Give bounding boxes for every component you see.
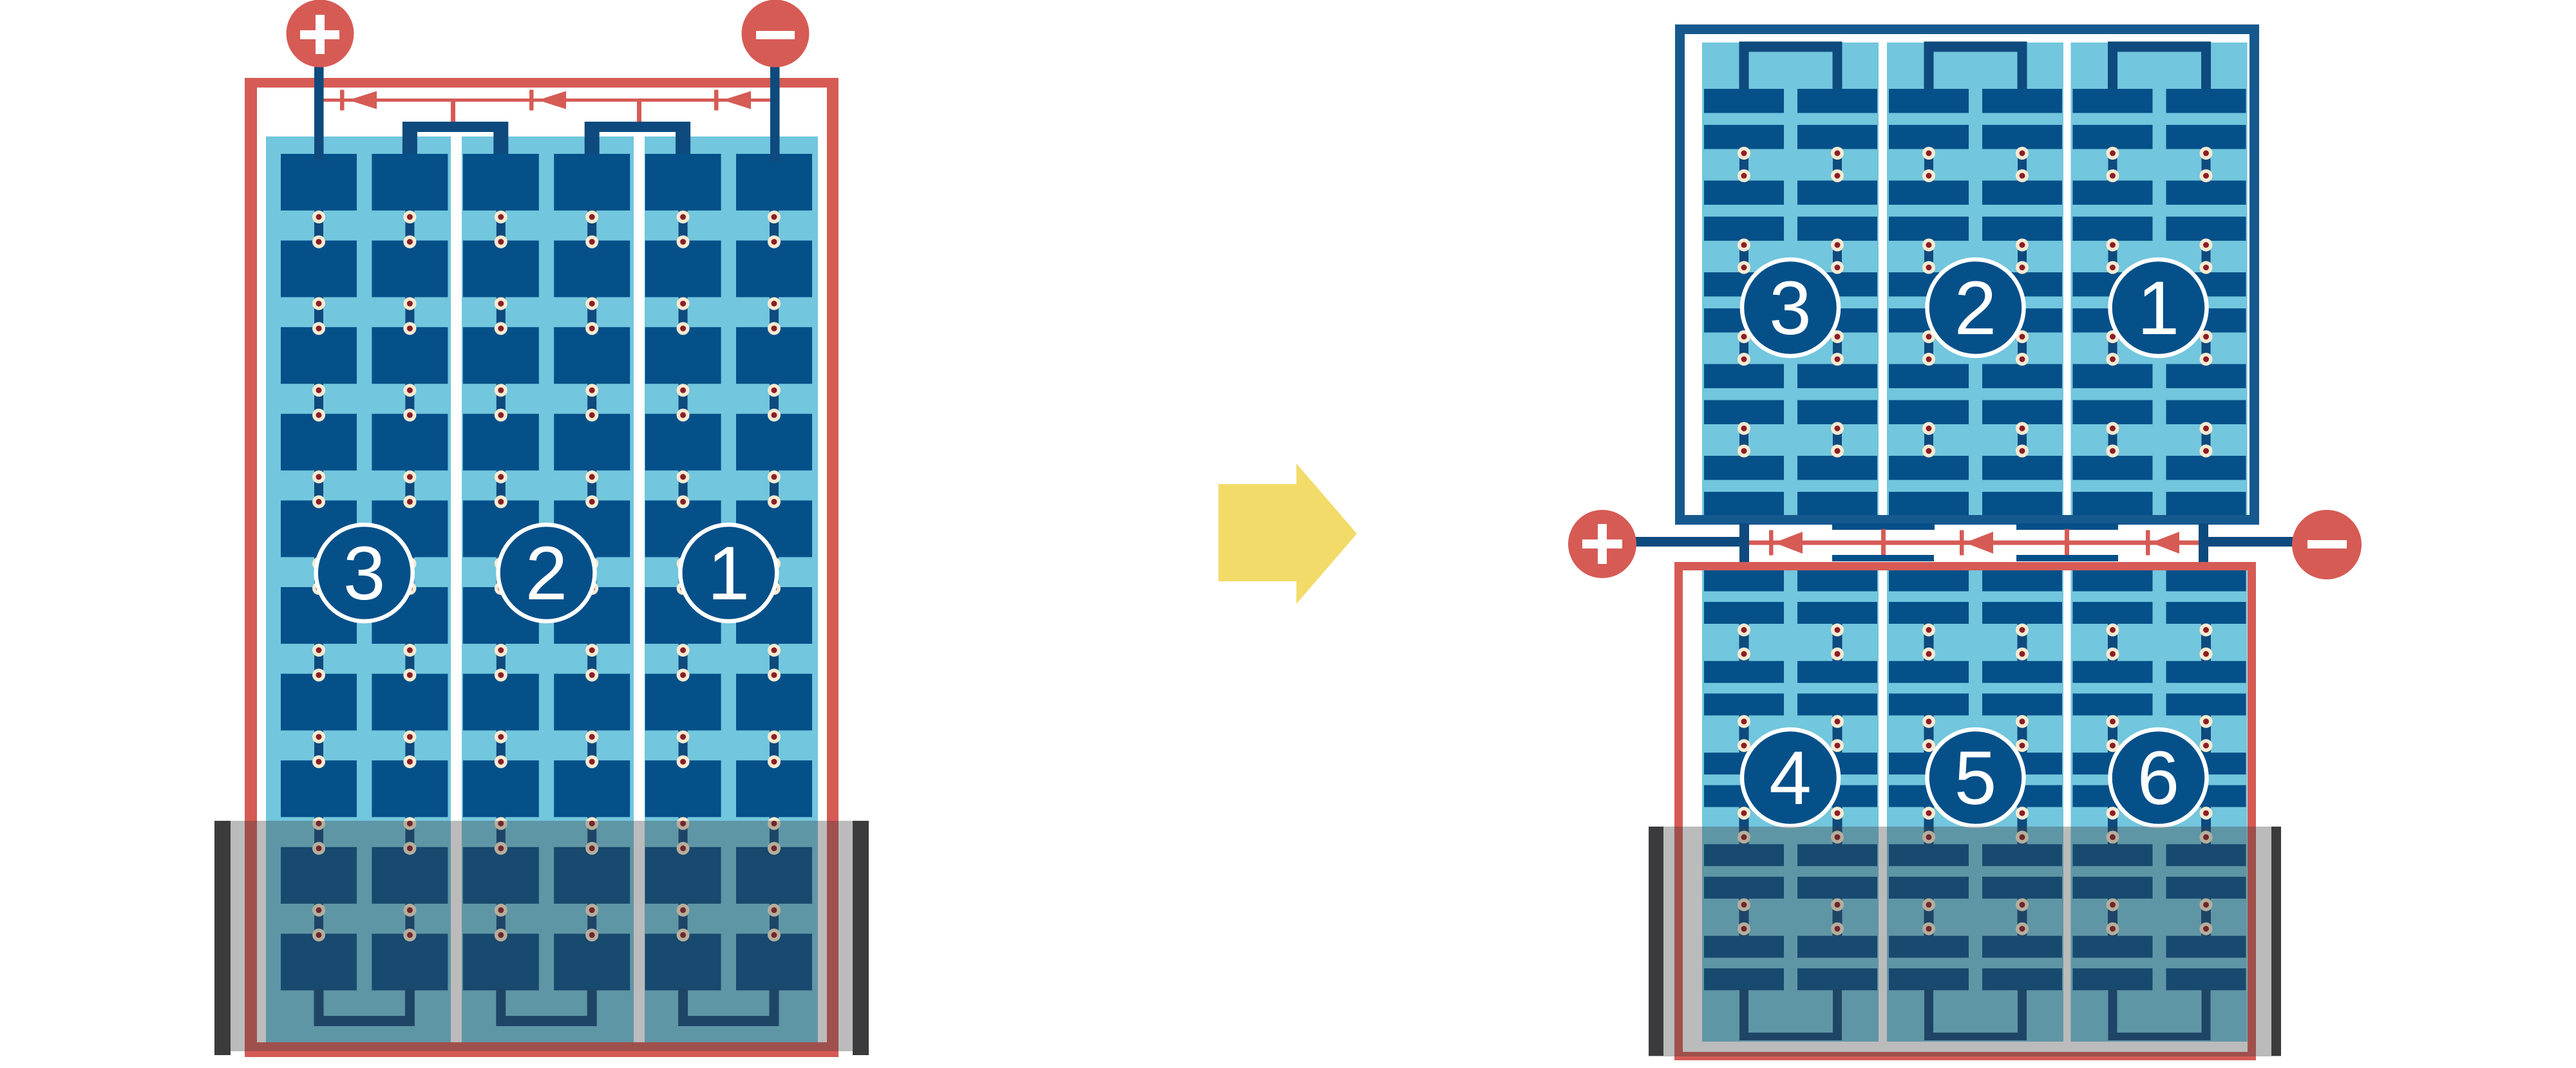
svg-text:1: 1	[2137, 266, 2180, 351]
svg-text:5: 5	[1955, 736, 1997, 821]
svg-text:2: 2	[526, 531, 568, 616]
svg-text:4: 4	[1769, 736, 1812, 821]
svg-text:3: 3	[1769, 266, 1812, 351]
svg-text:2: 2	[1955, 266, 1997, 351]
svg-text:1: 1	[707, 531, 750, 616]
svg-text:3: 3	[343, 531, 386, 616]
svg-text:6: 6	[2137, 736, 2180, 821]
